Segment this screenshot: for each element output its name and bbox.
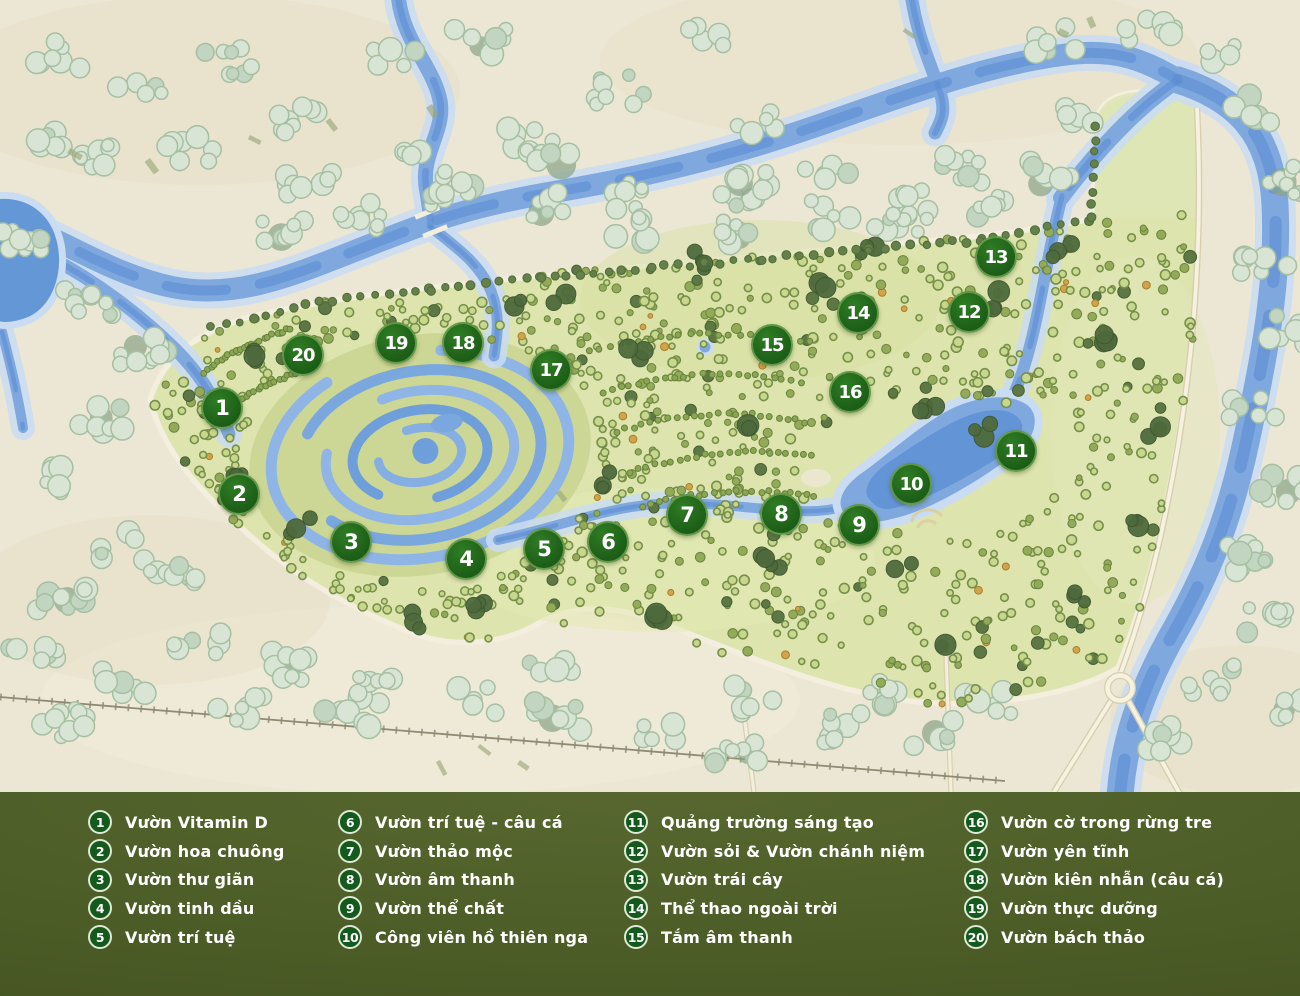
legend-number-badge: 18 bbox=[964, 868, 988, 892]
legend-item-label: Vườn Vitamin D bbox=[125, 813, 268, 832]
map-marker-12: 12 bbox=[948, 291, 990, 333]
legend-item-3: 3Vườn thư giãn bbox=[88, 865, 285, 894]
legend-item-6: 6Vườn trí tuệ - câu cá bbox=[338, 808, 588, 837]
legend-number-badge: 14 bbox=[624, 896, 648, 920]
legend-item-label: Vườn kiên nhẫn (câu cá) bbox=[1001, 870, 1224, 889]
legend-column-2: 6Vườn trí tuệ - câu cá7Vườn thảo mộc8Vườ… bbox=[338, 808, 588, 951]
map-marker-10: 10 bbox=[890, 463, 932, 505]
legend-number-badge: 12 bbox=[624, 839, 648, 863]
legend-item-18: 18Vườn kiên nhẫn (câu cá) bbox=[964, 865, 1224, 894]
legend-number-badge: 1 bbox=[88, 810, 112, 834]
legend-panel: 1Vườn Vitamin D2Vườn hoa chuông3Vườn thư… bbox=[0, 792, 1300, 996]
map-marker-14: 14 bbox=[837, 292, 879, 334]
map-marker-7: 7 bbox=[666, 494, 708, 536]
legend-number-badge: 4 bbox=[88, 896, 112, 920]
map-marker-13: 13 bbox=[975, 236, 1017, 278]
map-marker-2: 2 bbox=[218, 473, 260, 515]
legend-number-badge: 2 bbox=[88, 839, 112, 863]
legend-item-label: Vườn trí tuệ - câu cá bbox=[375, 813, 563, 832]
legend-number-badge: 15 bbox=[624, 925, 648, 949]
map-marker-9: 9 bbox=[838, 504, 880, 546]
map-marker-5: 5 bbox=[523, 528, 565, 570]
legend-item-label: Quảng trường sáng tạo bbox=[661, 813, 874, 832]
legend-item-label: Công viên hồ thiên nga bbox=[375, 928, 588, 947]
legend-item-label: Vườn tinh dầu bbox=[125, 899, 254, 918]
map-marker-17: 17 bbox=[530, 349, 572, 391]
legend-column-4: 16Vườn cờ trong rừng tre17Vườn yên tĩnh1… bbox=[964, 808, 1224, 951]
map-marker-11: 11 bbox=[995, 430, 1037, 472]
legend-item-1: 1Vườn Vitamin D bbox=[88, 808, 285, 837]
map-marker-19: 19 bbox=[375, 322, 417, 364]
legend-number-badge: 6 bbox=[338, 810, 362, 834]
legend-item-label: Vườn sỏi & Vườn chánh niệm bbox=[661, 842, 925, 861]
legend-item-10: 10Công viên hồ thiên nga bbox=[338, 923, 588, 952]
legend-number-badge: 7 bbox=[338, 839, 362, 863]
legend-number-badge: 16 bbox=[964, 810, 988, 834]
map-markers: 1234567891011121314151617181920 bbox=[0, 0, 1300, 792]
map-marker-16: 16 bbox=[829, 371, 871, 413]
legend-item-17: 17Vườn yên tĩnh bbox=[964, 837, 1224, 866]
legend-number-badge: 5 bbox=[88, 925, 112, 949]
legend-item-20: 20Vườn bách thảo bbox=[964, 923, 1224, 952]
map-marker-4: 4 bbox=[445, 538, 487, 580]
legend-item-label: Thể thao ngoài trời bbox=[661, 899, 838, 918]
legend-item-label: Vườn thư giãn bbox=[125, 870, 254, 889]
legend-item-label: Tắm âm thanh bbox=[661, 928, 793, 947]
legend-item-label: Vườn trí tuệ bbox=[125, 928, 236, 947]
park-masterplan: 1234567891011121314151617181920 1Vườn Vi… bbox=[0, 0, 1300, 996]
legend-item-8: 8Vườn âm thanh bbox=[338, 865, 588, 894]
map-marker-15: 15 bbox=[751, 324, 793, 366]
legend-item-label: Vườn hoa chuông bbox=[125, 842, 285, 861]
map-marker-18: 18 bbox=[442, 322, 484, 364]
legend-item-label: Vườn âm thanh bbox=[375, 870, 515, 889]
legend-item-label: Vườn thực dưỡng bbox=[1001, 899, 1158, 918]
legend-number-badge: 8 bbox=[338, 868, 362, 892]
legend-item-7: 7Vườn thảo mộc bbox=[338, 837, 588, 866]
legend-item-label: Vườn thể chất bbox=[375, 899, 504, 918]
map-marker-1: 1 bbox=[201, 387, 243, 429]
legend-item-16: 16Vườn cờ trong rừng tre bbox=[964, 808, 1224, 837]
legend-item-2: 2Vườn hoa chuông bbox=[88, 837, 285, 866]
map-marker-3: 3 bbox=[330, 521, 372, 563]
map-marker-8: 8 bbox=[760, 493, 802, 535]
legend-item-4: 4Vườn tinh dầu bbox=[88, 894, 285, 923]
legend-number-badge: 17 bbox=[964, 839, 988, 863]
legend-number-badge: 19 bbox=[964, 896, 988, 920]
legend-column-1: 1Vườn Vitamin D2Vườn hoa chuông3Vườn thư… bbox=[88, 808, 285, 951]
legend-item-label: Vườn cờ trong rừng tre bbox=[1001, 813, 1212, 832]
legend-item-5: 5Vườn trí tuệ bbox=[88, 923, 285, 952]
legend-number-badge: 9 bbox=[338, 896, 362, 920]
legend-item-label: Vườn thảo mộc bbox=[375, 842, 513, 861]
legend-number-badge: 20 bbox=[964, 925, 988, 949]
legend-number-badge: 13 bbox=[624, 868, 648, 892]
legend-item-19: 19Vườn thực dưỡng bbox=[964, 894, 1224, 923]
legend-item-11: 11Quảng trường sáng tạo bbox=[624, 808, 925, 837]
map-marker-6: 6 bbox=[587, 521, 629, 563]
legend-number-badge: 3 bbox=[88, 868, 112, 892]
legend-item-12: 12Vườn sỏi & Vườn chánh niệm bbox=[624, 837, 925, 866]
legend-item-label: Vườn trái cây bbox=[661, 870, 783, 889]
legend-item-label: Vườn yên tĩnh bbox=[1001, 842, 1129, 861]
legend-number-badge: 11 bbox=[624, 810, 648, 834]
legend-item-9: 9Vườn thể chất bbox=[338, 894, 588, 923]
legend-item-label: Vườn bách thảo bbox=[1001, 928, 1145, 947]
legend-item-15: 15Tắm âm thanh bbox=[624, 923, 925, 952]
legend-column-3: 11Quảng trường sáng tạo12Vườn sỏi & Vườn… bbox=[624, 808, 925, 951]
legend-item-14: 14Thể thao ngoài trời bbox=[624, 894, 925, 923]
map-marker-20: 20 bbox=[282, 334, 324, 376]
legend-item-13: 13Vườn trái cây bbox=[624, 865, 925, 894]
legend-number-badge: 10 bbox=[338, 925, 362, 949]
